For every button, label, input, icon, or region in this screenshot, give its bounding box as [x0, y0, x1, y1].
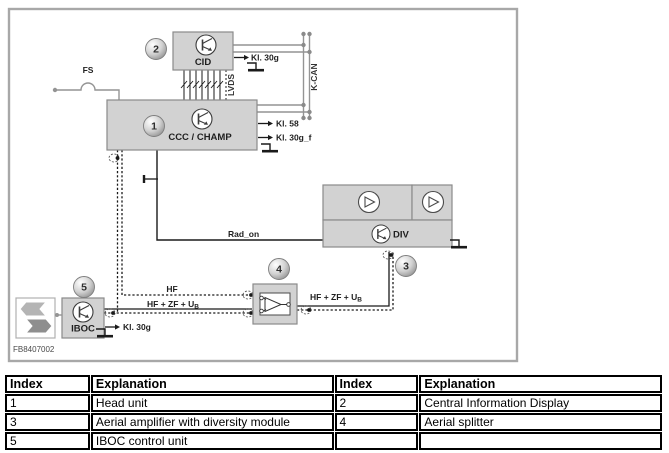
legend-row-2: 3 Aerial amplifier with diversity module… [5, 413, 662, 431]
ccc-champ-label: CCC / CHAMP [168, 132, 232, 143]
index-cell: 3 [5, 413, 90, 431]
badge-4: 4 [269, 259, 290, 280]
ccc-champ-block: CCC / CHAMP [107, 100, 257, 150]
index-cell: 2 [335, 394, 419, 412]
kl58-label: Kl. 58 [276, 119, 299, 129]
kl30gf-label: Kl. 30g_f [276, 133, 312, 143]
div-transistor-icon [372, 225, 390, 243]
cid-kl30g-label: Kl. 30g [251, 53, 279, 63]
div-block: DIV [323, 185, 452, 247]
hd-radio-icon [16, 298, 62, 338]
iboc-kl30g-label: Kl. 30g [123, 322, 151, 332]
index-cell: 4 [335, 413, 419, 431]
figure-id: FB8407002 [13, 345, 55, 354]
cid-label: CID [195, 57, 212, 68]
explanation-cell: Head unit [91, 394, 334, 412]
aerial-splitter-block [253, 284, 297, 324]
hf-zf-ub-label-right: HF + ZF + UB [310, 292, 362, 304]
explanation-cell: Central Information Display [419, 394, 662, 412]
col-header-explanation-left: Explanation [91, 375, 334, 393]
ccc-transistor-icon [192, 109, 212, 129]
svg-text:5: 5 [81, 282, 87, 294]
svg-text:2: 2 [153, 44, 159, 56]
index-cell: 5 [5, 432, 90, 450]
fs-label: FS [83, 65, 94, 75]
cid-block: CID [173, 32, 233, 70]
hf-label: HF [166, 284, 177, 294]
svg-text:3: 3 [403, 261, 409, 273]
div-amplifier-icon-2 [423, 192, 444, 213]
lvds-label: LVDS [226, 74, 236, 96]
iboc-block: IBOC [62, 298, 104, 338]
cid-transistor-icon [196, 35, 216, 55]
svg-text:1: 1 [151, 121, 157, 133]
index-cell: 1 [5, 394, 90, 412]
badge-3: 3 [396, 256, 417, 277]
explanation-cell: IBOC control unit [91, 432, 334, 450]
badge-1: 1 [144, 116, 165, 137]
explanation-cell [419, 432, 662, 450]
badge-5: 5 [74, 277, 95, 298]
div-amplifier-icon-1 [359, 192, 380, 213]
iboc-label: IBOC [71, 324, 95, 335]
div-label: DIV [393, 230, 410, 241]
hf-zf-ub-label-left: HF + ZF + UB [147, 299, 199, 311]
col-header-index-right: Index [335, 375, 419, 393]
legend-row-3: 5 IBOC control unit [5, 432, 662, 450]
svg-text:4: 4 [276, 264, 282, 276]
k-can-label: K-CAN [309, 63, 319, 90]
index-cell [335, 432, 419, 450]
page: K-CAN FS LVDS Rad_on [0, 0, 669, 453]
rad-on-label: Rad_on [228, 229, 259, 239]
explanation-cell: Aerial splitter [419, 413, 662, 431]
col-header-index-left: Index [5, 375, 90, 393]
badge-2: 2 [146, 39, 167, 60]
iboc-transistor-icon [73, 302, 93, 322]
col-header-explanation-right: Explanation [419, 375, 662, 393]
legend-row-1: 1 Head unit 2 Central Information Displa… [5, 394, 662, 412]
legend-table: Index Explanation Index Explanation 1 He… [4, 374, 663, 451]
wiring-diagram: K-CAN FS LVDS Rad_on [0, 0, 669, 372]
explanation-cell: Aerial amplifier with diversity module [91, 413, 334, 431]
legend-header-row: Index Explanation Index Explanation [5, 375, 662, 393]
